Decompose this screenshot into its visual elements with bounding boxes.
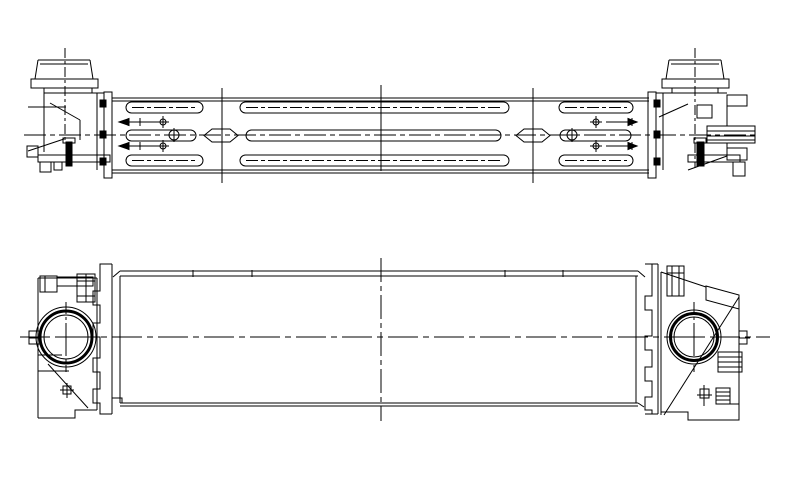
right-top-bracket [667, 266, 684, 296]
drawing-line [119, 143, 129, 150]
drawing-line [645, 264, 652, 414]
drawing-sheet [0, 0, 800, 497]
left-bolt [66, 142, 72, 166]
drawing-rect [654, 100, 660, 107]
right-bracket-upper [727, 95, 747, 106]
front-view [20, 258, 770, 421]
drawing-line [638, 403, 644, 407]
top-view [24, 48, 758, 183]
drawing-rect [54, 162, 62, 170]
drawing-line [721, 60, 724, 79]
drawing-rect [27, 146, 38, 157]
drawing-line [90, 60, 93, 79]
drawing-line [666, 60, 669, 79]
drawing-line [119, 119, 129, 126]
drawing-rect [100, 100, 106, 107]
right-bolt [697, 142, 704, 166]
drawing-line [638, 271, 645, 277]
drawing-line [35, 60, 38, 79]
drawing-rect [654, 158, 660, 165]
drawing-line [38, 410, 97, 418]
drawing-rect [100, 158, 106, 165]
right-bracket-lower [727, 148, 747, 160]
technical-drawing [0, 0, 800, 497]
drawing-line [113, 271, 120, 277]
drawing-line [28, 139, 64, 151]
drawing-rect [40, 162, 51, 172]
drawing-line [688, 156, 727, 170]
left-mount-plate [38, 155, 110, 162]
drawing-rect [733, 162, 745, 176]
drawing-rect [697, 105, 712, 118]
drawing-line [661, 404, 739, 420]
